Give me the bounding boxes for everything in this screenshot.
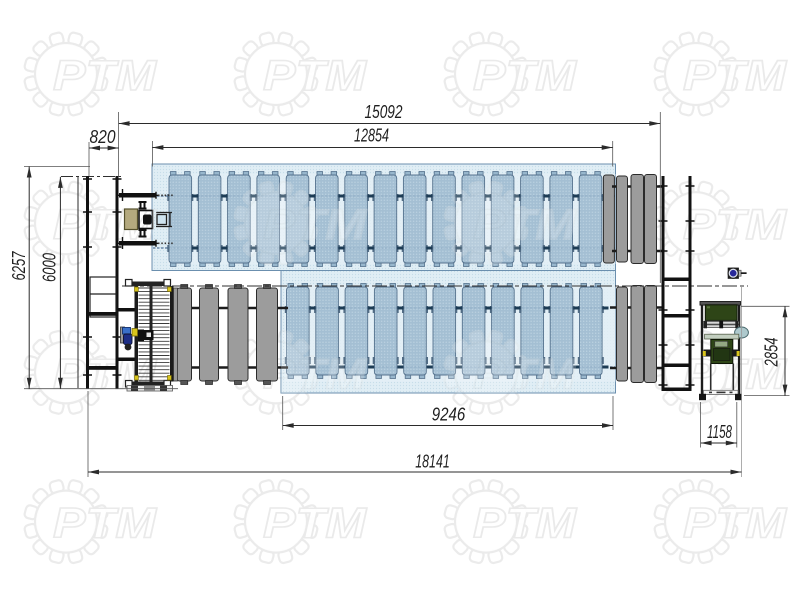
svg-text:15092: 15092	[365, 101, 404, 122]
svg-text:9246: 9246	[432, 404, 466, 425]
svg-text:1158: 1158	[707, 421, 732, 442]
svg-text:6000: 6000	[38, 252, 59, 282]
svg-text:2854: 2854	[761, 338, 782, 368]
svg-text:820: 820	[90, 126, 117, 147]
svg-text:12854: 12854	[354, 125, 389, 146]
svg-text:18141: 18141	[415, 450, 450, 471]
svg-text:6257: 6257	[8, 251, 29, 281]
